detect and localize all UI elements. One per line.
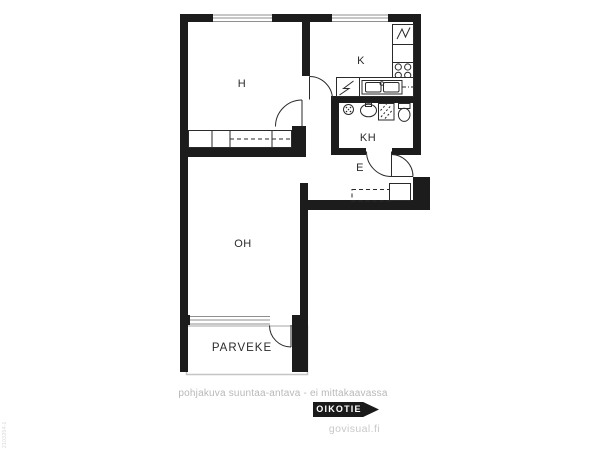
room-label-e: E xyxy=(356,162,364,174)
shower-icon xyxy=(344,105,354,115)
room-label-oh: OH xyxy=(234,238,252,250)
window-top-k xyxy=(332,15,388,22)
floor-plan-page: H K KH E OH PARVEKE pohjakuva suuntaa-an… xyxy=(0,0,600,450)
room-label-parveke: PARVEKE xyxy=(212,342,272,354)
door-kitchen xyxy=(310,77,333,100)
room-label-k: K xyxy=(357,55,365,67)
room-label-kh: KH xyxy=(360,132,376,144)
door-front xyxy=(391,155,413,177)
govisual-credit: govisual.fi xyxy=(280,423,380,435)
washing-machine-icon xyxy=(379,104,395,121)
floor-plan: H K KH E OH PARVEKE xyxy=(0,0,600,450)
kitchen-counter-right xyxy=(393,25,414,81)
wardrobe-row-h xyxy=(189,131,292,148)
oikotie-logo-text: OIKOTIE xyxy=(316,404,361,414)
room-label-h: H xyxy=(238,78,246,90)
toilet-icon xyxy=(398,104,410,122)
washbasin-icon xyxy=(361,103,377,117)
door-room-h xyxy=(276,100,303,127)
wardrobe-entry xyxy=(390,184,411,201)
wardrobe-entry-dashed xyxy=(352,190,390,202)
window-top-h xyxy=(213,15,272,22)
disclaimer-text: pohjakuva suuntaa-antava - ei mittakaava… xyxy=(150,388,416,399)
door-bathroom xyxy=(367,152,392,177)
watermark-vertical-text: 2103254-1 xyxy=(2,408,8,448)
window-balcony xyxy=(190,317,270,325)
